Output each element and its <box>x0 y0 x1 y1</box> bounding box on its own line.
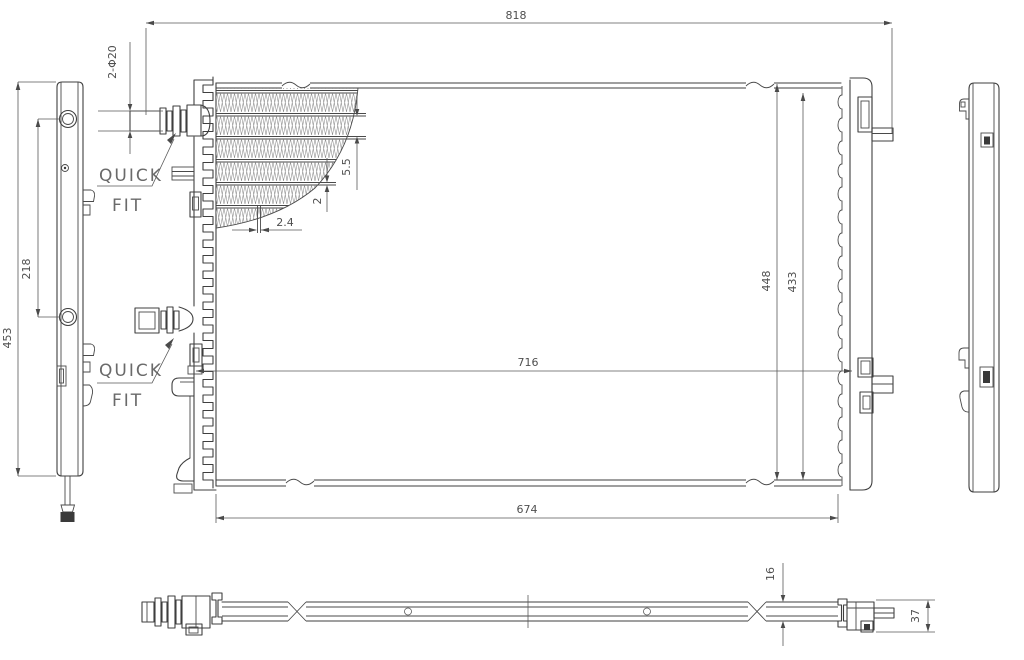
mount-clip-top-bump <box>961 102 965 107</box>
pin-block-top-inner <box>984 137 990 145</box>
dim-port-spacing-218: 218 <box>20 119 60 317</box>
tank-clip-block <box>190 192 201 217</box>
arrow-down <box>926 624 931 632</box>
dim-433-label: 433 <box>786 272 799 293</box>
arrow-down <box>801 472 806 480</box>
arrow-right <box>830 516 838 520</box>
drain-plug-outline <box>61 505 75 512</box>
left-coupler <box>212 593 222 624</box>
right-tank-scalloped-edge <box>838 86 842 486</box>
arrow-down <box>325 176 330 183</box>
arrow-up <box>325 185 330 192</box>
bottom-view <box>142 593 894 635</box>
right-tank-outline <box>850 78 872 490</box>
leader-arrow <box>165 338 174 349</box>
drain-stem <box>65 476 70 505</box>
arrow-down <box>128 104 133 111</box>
left-tank-serrated-edge <box>203 77 213 488</box>
dim-port-diameter: 2-Φ20 <box>98 42 163 154</box>
dim-phi20-label: 2-Φ20 <box>106 45 119 79</box>
pipe-stub <box>130 111 160 131</box>
rail-hole-2 <box>644 608 651 615</box>
dim-24-label: 2.4 <box>276 216 294 229</box>
arrow-up <box>781 621 786 628</box>
arrow-right <box>249 228 257 232</box>
right-end-foot-inner <box>864 624 870 630</box>
tank-clip-block-inner <box>193 197 199 210</box>
left-side-view <box>57 82 95 522</box>
dim-37-label: 37 <box>909 609 922 623</box>
right-bracket-tab-lower <box>872 376 893 393</box>
right-bracket-top-inner <box>861 101 869 128</box>
quick-fit-port-lower <box>135 307 193 333</box>
arrow-left <box>216 516 224 520</box>
inlet-port-inner <box>63 114 74 125</box>
arrow-down <box>775 472 780 480</box>
arrow-right <box>884 21 892 26</box>
outlet-port-inner <box>63 312 74 323</box>
right-bracket-bottom-inner <box>863 396 870 409</box>
arrow-up <box>128 131 133 138</box>
arrow-up <box>16 82 21 90</box>
dim-818-label: 818 <box>506 9 527 22</box>
quick-fit-callout-lower: QUICK FIT <box>97 338 174 411</box>
dim-218-label: 218 <box>20 259 33 280</box>
dim-height-448: 448 <box>760 84 779 480</box>
dim-2-label: 2 <box>311 198 324 205</box>
tank-clip-flange-lines <box>172 172 194 177</box>
bottom-connector-cap <box>142 602 154 622</box>
leader-arrow <box>167 133 176 144</box>
radiator-technical-drawing: 818 2-Φ20 716 674 448 433 453 <box>0 0 1024 660</box>
dim-716-label: 716 <box>518 356 539 369</box>
callout-word-fit: FIT <box>112 391 143 411</box>
arrow-left <box>196 369 204 373</box>
tank-clip-lower <box>190 344 202 366</box>
drain-plug <box>61 512 75 522</box>
callout-word-quick: QUICK <box>99 361 163 381</box>
pin-block-lower-inner <box>983 371 990 383</box>
right-bracket-mid-inner <box>861 361 870 374</box>
arrow-up <box>801 93 806 101</box>
quick-fit-callout-upper: QUICK FIT <box>97 133 176 216</box>
callout-word-fit: FIT <box>112 196 143 216</box>
tank-clip-flange <box>172 167 194 180</box>
arrow-up <box>36 119 41 127</box>
small-boss-center <box>64 167 66 169</box>
dim-16-label: 16 <box>764 567 777 581</box>
hook-lower <box>960 391 969 412</box>
drawing-sheet: 818 2-Φ20 716 674 448 433 453 <box>0 0 1024 660</box>
arrow-down <box>355 109 360 116</box>
right-side-view <box>959 83 999 492</box>
arrow-down <box>781 595 786 602</box>
core-rails <box>222 602 838 621</box>
side-hook <box>83 385 93 406</box>
arrow-left <box>146 21 154 26</box>
right-bracket-top-tab <box>872 128 893 141</box>
dim-width-674: 674 <box>216 494 838 523</box>
side-bracket-inner <box>60 369 64 383</box>
dim-core-thickness: 16 <box>764 563 785 646</box>
arrow-right <box>844 369 852 373</box>
bottom-left-foot <box>174 484 192 493</box>
right-bracket-top <box>858 97 872 132</box>
side-mount-clip-lower <box>83 344 95 372</box>
dim-453-label: 453 <box>1 328 14 349</box>
dim-width-716: 716 <box>196 356 852 373</box>
right-coupler <box>838 599 847 627</box>
arrow-down <box>36 309 41 317</box>
arrow-up <box>926 600 931 608</box>
arrow-left <box>261 228 269 232</box>
connector-body <box>187 105 201 136</box>
arrow-up <box>355 137 360 144</box>
side-tank-inner-walls <box>61 82 78 476</box>
dim-end-depth: 37 <box>876 600 935 632</box>
tank-channel-bracket <box>172 378 194 396</box>
mount-clip-lower <box>959 348 969 368</box>
right-bracket-bottom <box>860 392 873 413</box>
dim-448-label: 448 <box>760 271 773 292</box>
core-rails-inner <box>222 607 838 616</box>
connector-nose <box>179 307 193 331</box>
side-tank-inner-walls <box>973 83 994 492</box>
dim-37-lines <box>876 600 935 632</box>
arrow-down <box>16 468 21 476</box>
side-mount-clip-upper <box>83 190 95 215</box>
rail-hole-1 <box>405 608 412 615</box>
dim-height-433: 433 <box>786 93 805 480</box>
dim-55-label: 5.5 <box>340 158 353 176</box>
dim-674-label: 674 <box>517 503 538 516</box>
bottom-left-hook <box>177 458 194 481</box>
